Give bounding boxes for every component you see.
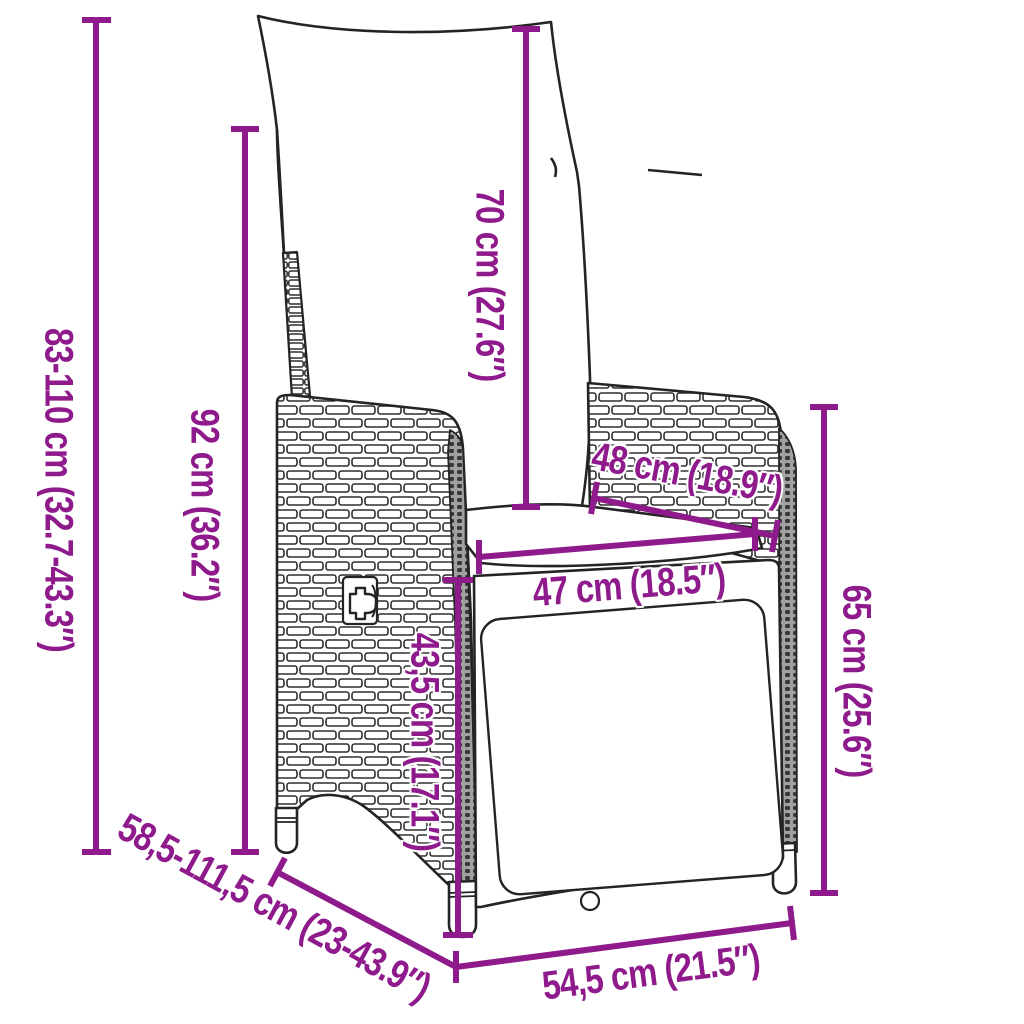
dimension-label-backrest-height: 92 cm (36.2″) (182, 409, 227, 602)
dimension-label-armrest-height: 65 cm (25.6″) (834, 585, 879, 778)
dimension-label-seat-height: 43,5 cm (17.1″) (402, 633, 447, 852)
left-side-panel (277, 395, 477, 888)
dimension-diagram: 83-110 cm (32.7-43.3″) 92 cm (36.2″) 70 … (0, 0, 1024, 1024)
dimension-label-total-height: 83-110 cm (32.7-43.3″) (36, 328, 81, 652)
cushion-crease (648, 170, 702, 175)
footrest-cushion (480, 598, 785, 895)
dimension-label-cushion-height: 70 cm (27.6″) (467, 189, 512, 382)
dimension-line-backrest-height (231, 129, 259, 852)
dimension-line-total-height (82, 20, 111, 852)
recline-handle (343, 577, 377, 624)
chair-line-art (0, 0, 1024, 1024)
caster (581, 892, 599, 910)
